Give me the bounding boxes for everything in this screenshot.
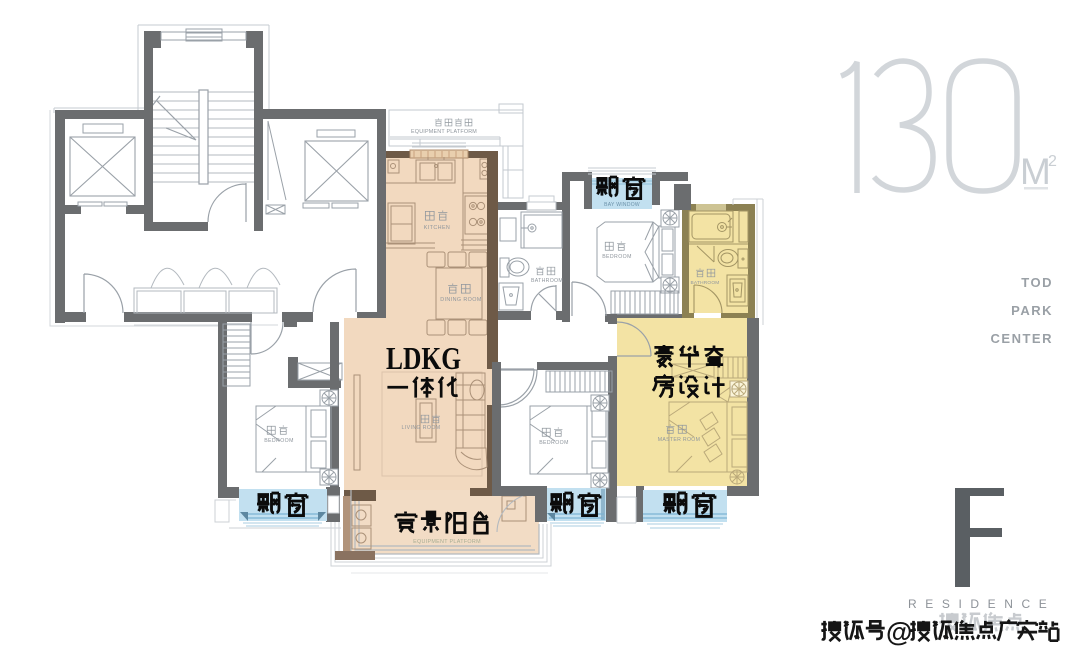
svg-text:BEDROOM: BEDROOM xyxy=(602,254,632,260)
svg-text:TOD: TOD xyxy=(1021,275,1053,290)
svg-text:BEDROOM: BEDROOM xyxy=(264,438,294,444)
svg-text:BAY WINDOW: BAY WINDOW xyxy=(604,202,640,208)
svg-text:EQUIPMENT PLATFORM: EQUIPMENT PLATFORM xyxy=(413,539,481,545)
svg-text:LDKG: LDKG xyxy=(386,340,461,376)
svg-text:BATHROOM: BATHROOM xyxy=(531,278,563,284)
svg-text:2: 2 xyxy=(1048,153,1057,170)
svg-text:MASTER ROOM: MASTER ROOM xyxy=(658,437,701,443)
svg-text:LIVING ROOM: LIVING ROOM xyxy=(402,425,441,431)
svg-text:BATHROOM: BATHROOM xyxy=(691,280,720,286)
svg-text:@: @ xyxy=(886,617,912,647)
svg-text:EQUIPMENT PLATFORM: EQUIPMENT PLATFORM xyxy=(411,129,477,135)
svg-text:BEDROOM: BEDROOM xyxy=(539,440,569,446)
svg-text:RESIDENCE: RESIDENCE xyxy=(908,597,1055,611)
svg-text:DINING ROOM: DINING ROOM xyxy=(440,297,482,303)
svg-text:PARK: PARK xyxy=(1011,303,1053,318)
svg-text:M: M xyxy=(1020,151,1051,192)
svg-text:KITCHEN: KITCHEN xyxy=(424,225,450,231)
svg-text:CENTER: CENTER xyxy=(991,331,1053,346)
